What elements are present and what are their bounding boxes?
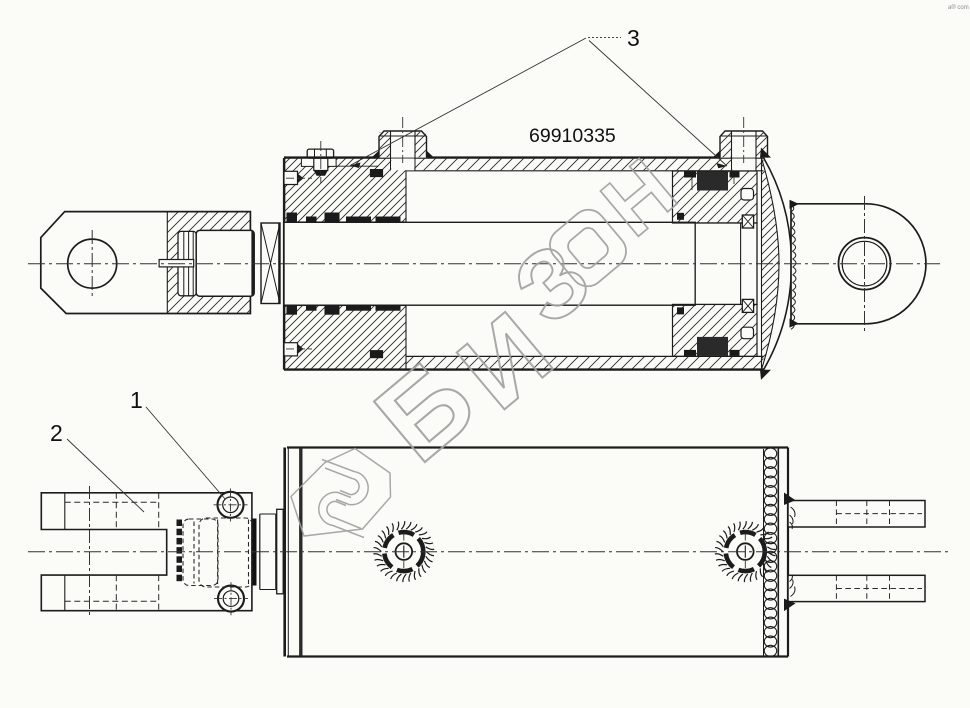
svg-text:a® com: a® com <box>948 4 969 11</box>
svg-text:69910335: 69910335 <box>529 125 616 147</box>
svg-text:1: 1 <box>130 387 143 413</box>
svg-text:2: 2 <box>50 420 63 446</box>
svg-text:3: 3 <box>627 25 640 51</box>
